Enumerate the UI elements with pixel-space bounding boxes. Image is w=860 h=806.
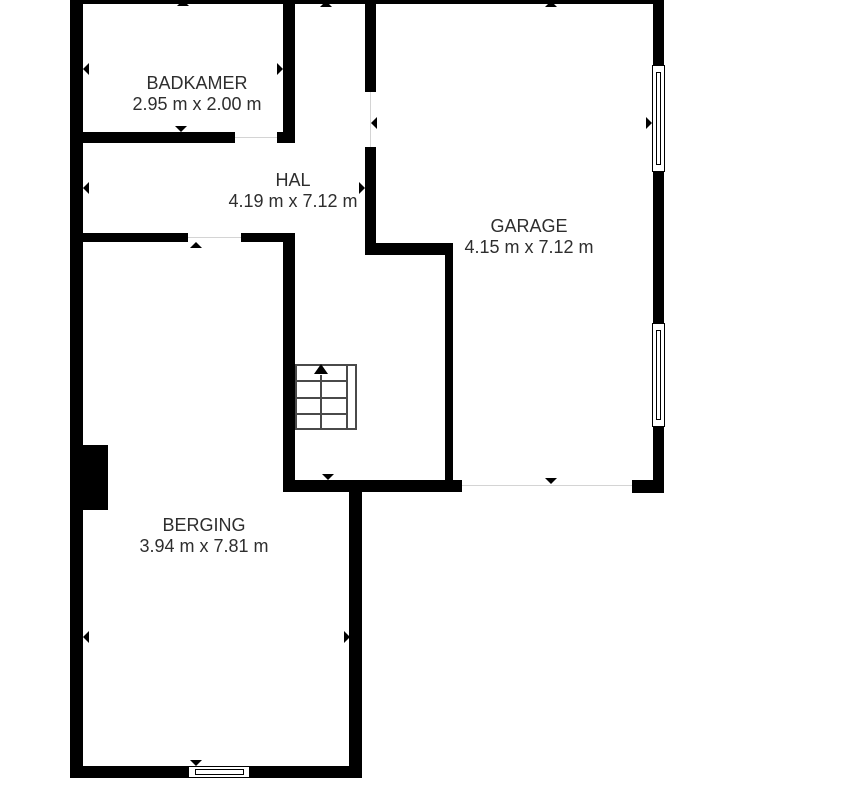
wall-garage-right-upper [653,0,664,65]
measure-arrow-left-icon [83,182,89,194]
room-label-berging: BERGING 3.94 m x 7.81 m [139,515,268,557]
wall-garage-bottom-left [283,480,462,492]
room-name: HAL [228,170,357,191]
window-berging-bottom-glass [195,769,244,775]
wall-garage-left-top [365,0,376,92]
room-label-badkamer: BADKAMER 2.95 m x 2.00 m [132,73,261,115]
window-garage-lower-glass [656,330,661,420]
wall-badkamer-bottom [82,132,235,143]
room-label-hal: HAL 4.19 m x 7.12 m [228,170,357,212]
wall-garage-bottom-right [632,480,664,493]
room-name: BERGING [139,515,268,536]
stairs-up-arrow-shaft [320,375,322,428]
wall-left [70,0,83,778]
measure-arrow-down-icon [190,760,202,766]
measure-arrow-down-icon [175,126,187,132]
measure-arrow-left-icon [83,631,89,643]
measure-arrow-down-icon [322,474,334,480]
wall-berging-right [349,481,362,778]
measure-arrow-right-icon [646,117,652,129]
wall-bottom-right-of-window [250,766,362,778]
garage-door-opening [462,485,632,486]
wall-pillar-berging [82,445,108,510]
wall-badkamer-bottom-stub [277,132,295,143]
wall-hal-berging-left [82,233,188,242]
measure-arrow-up-icon [177,0,189,6]
room-dimensions: 4.19 m x 7.12 m [228,191,357,212]
measure-arrow-right-icon [359,182,365,194]
door-opening-hal-berging [188,237,241,238]
room-name: BADKAMER [132,73,261,94]
room-dimensions: 3.94 m x 7.81 m [139,536,268,557]
wall-stair-left [283,233,295,485]
wall-bottom-left-of-window [70,766,188,778]
measure-arrow-down-icon [545,478,557,484]
measure-arrow-right-icon [344,631,350,643]
measure-arrow-right-icon [277,63,283,75]
room-name: GARAGE [464,216,593,237]
room-label-garage: GARAGE 4.15 m x 7.12 m [464,216,593,258]
measure-arrow-left-icon [371,117,377,129]
wall-garage-right-middle [653,172,664,323]
measure-arrow-left-icon [83,63,89,75]
floorplan: BADKAMER 2.95 m x 2.00 m HAL 4.19 m x 7.… [0,0,860,806]
measure-arrow-up-icon [545,1,557,7]
measure-arrow-up-icon [320,1,332,7]
stairs-up-arrow-icon [314,364,328,374]
wall-badkamer-right [283,0,295,142]
window-garage-upper-glass [656,72,661,165]
measure-arrow-up-icon [190,242,202,248]
room-dimensions: 4.15 m x 7.12 m [464,237,593,258]
wall-garage-notch [365,243,453,255]
room-dimensions: 2.95 m x 2.00 m [132,94,261,115]
wall-stair-right [445,243,453,485]
door-opening-badkamer [235,137,277,138]
wall-garage-left-mid [365,147,376,255]
